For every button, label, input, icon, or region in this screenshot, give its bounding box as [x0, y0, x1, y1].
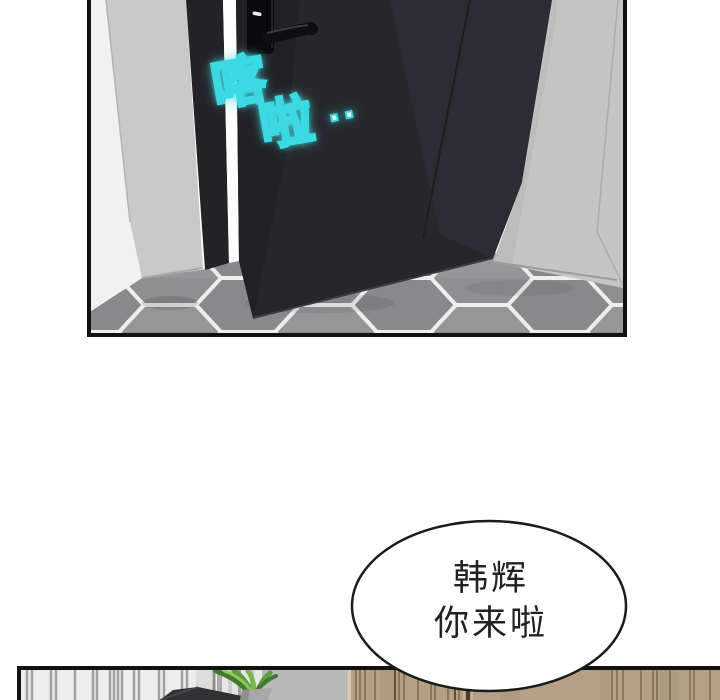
comic-page: 喀 啦 ··	[0, 0, 720, 700]
speech-line-2: 你来啦	[345, 601, 637, 646]
sfx-word-2: 啦	[256, 93, 317, 154]
speech-line-1: 韩辉	[345, 556, 637, 601]
speech-bubble-text: 韩辉 你来啦	[345, 556, 637, 646]
left-wall	[91, 0, 203, 311]
speech-bubble: 韩辉 你来啦	[345, 516, 637, 700]
panel-door-scene	[87, 0, 627, 337]
sfx-dots: ··	[325, 97, 361, 135]
door-scene-art	[91, 0, 623, 333]
door-lock-plate	[247, 0, 274, 54]
